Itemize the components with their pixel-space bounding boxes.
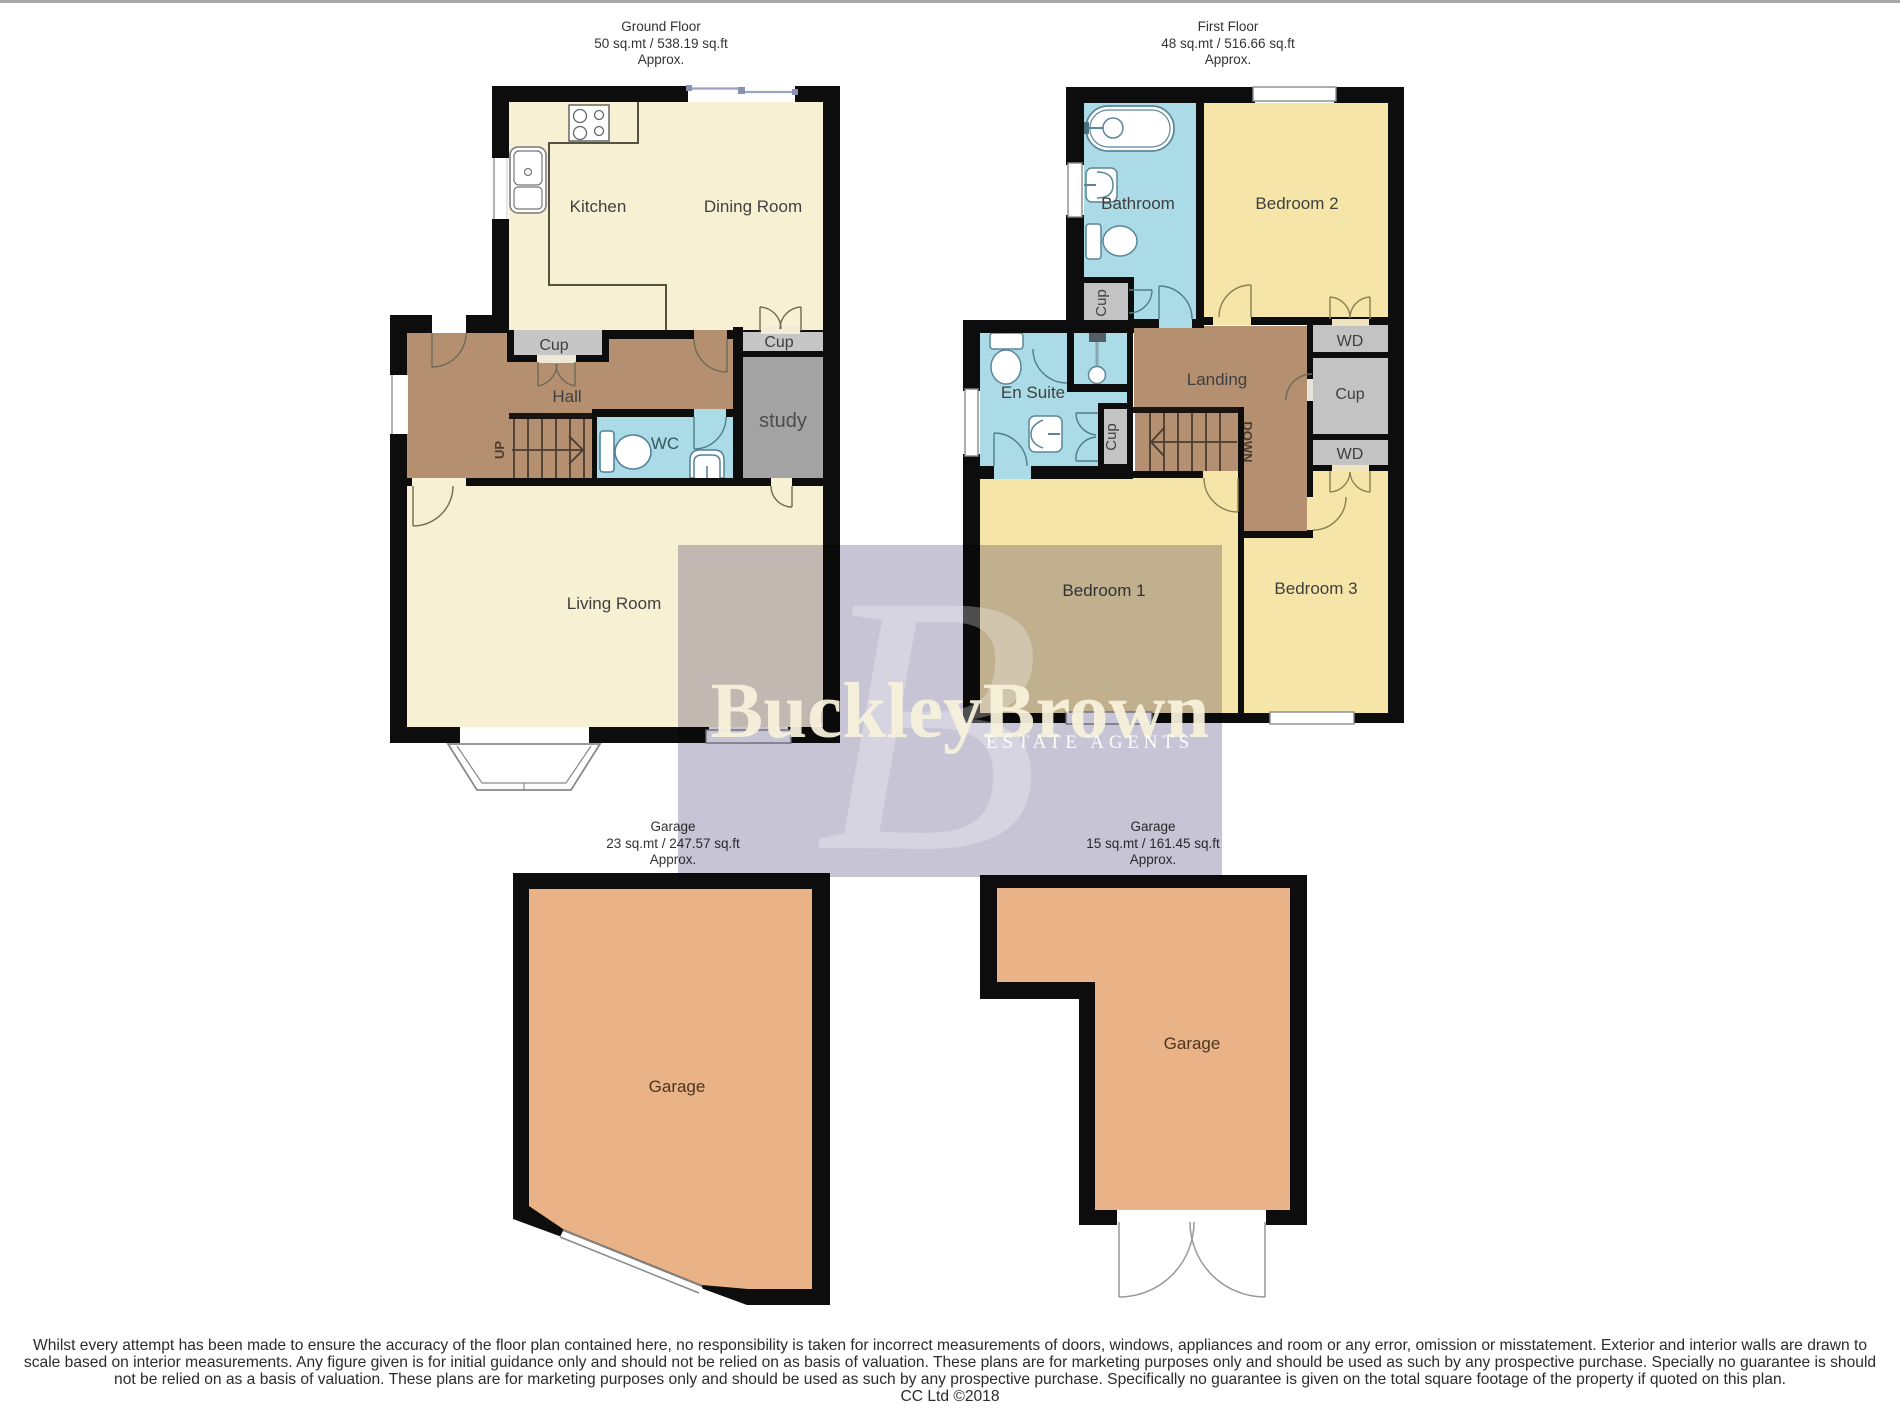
svg-text:Garage: Garage: [649, 1077, 706, 1096]
svg-text:50 sq.mt / 538.19 sq.ft: 50 sq.mt / 538.19 sq.ft: [594, 36, 728, 51]
svg-text:Living Room: Living Room: [567, 594, 662, 613]
svg-text:Bathroom: Bathroom: [1101, 194, 1175, 213]
svg-text:Whilst every attempt has been: Whilst every attempt has been made to en…: [33, 1337, 1867, 1354]
svg-text:scale based on interior measur: scale based on interior measurements. An…: [24, 1354, 1876, 1371]
svg-text:study: study: [759, 410, 807, 432]
svg-text:WD: WD: [1337, 446, 1364, 463]
svg-text:Approx.: Approx.: [1205, 52, 1252, 67]
svg-text:ESTATE AGENTS: ESTATE AGENTS: [986, 732, 1194, 753]
svg-text:WC: WC: [651, 434, 679, 453]
svg-text:Cup: Cup: [1103, 423, 1120, 451]
svg-text:Cup: Cup: [1335, 386, 1364, 403]
svg-text:Dining Room: Dining Room: [704, 197, 802, 216]
svg-text:Hall: Hall: [552, 387, 581, 406]
svg-text:CC Ltd ©2018: CC Ltd ©2018: [900, 1388, 999, 1405]
svg-text:Cup: Cup: [764, 334, 793, 351]
svg-text:Ground Floor: Ground Floor: [621, 19, 701, 34]
svg-text:First Floor: First Floor: [1198, 19, 1259, 34]
svg-text:Cup: Cup: [1093, 289, 1110, 317]
svg-text:Kitchen: Kitchen: [570, 197, 627, 216]
svg-text:Cup: Cup: [539, 337, 568, 354]
svg-text:Garage: Garage: [1164, 1034, 1221, 1053]
svg-text:Bedroom 2: Bedroom 2: [1255, 194, 1338, 213]
svg-text:UP: UP: [492, 441, 507, 459]
svg-text:Bedroom 3: Bedroom 3: [1274, 579, 1357, 598]
svg-text:Landing: Landing: [1187, 370, 1248, 389]
svg-text:Approx.: Approx.: [638, 52, 685, 67]
svg-text:not be relied on as a basis of: not be relied on as a basis of valuation…: [114, 1371, 1786, 1388]
svg-text:En Suite: En Suite: [1001, 383, 1065, 402]
svg-text:WD: WD: [1337, 333, 1364, 350]
svg-text:48 sq.mt / 516.66 sq.ft: 48 sq.mt / 516.66 sq.ft: [1161, 36, 1295, 51]
